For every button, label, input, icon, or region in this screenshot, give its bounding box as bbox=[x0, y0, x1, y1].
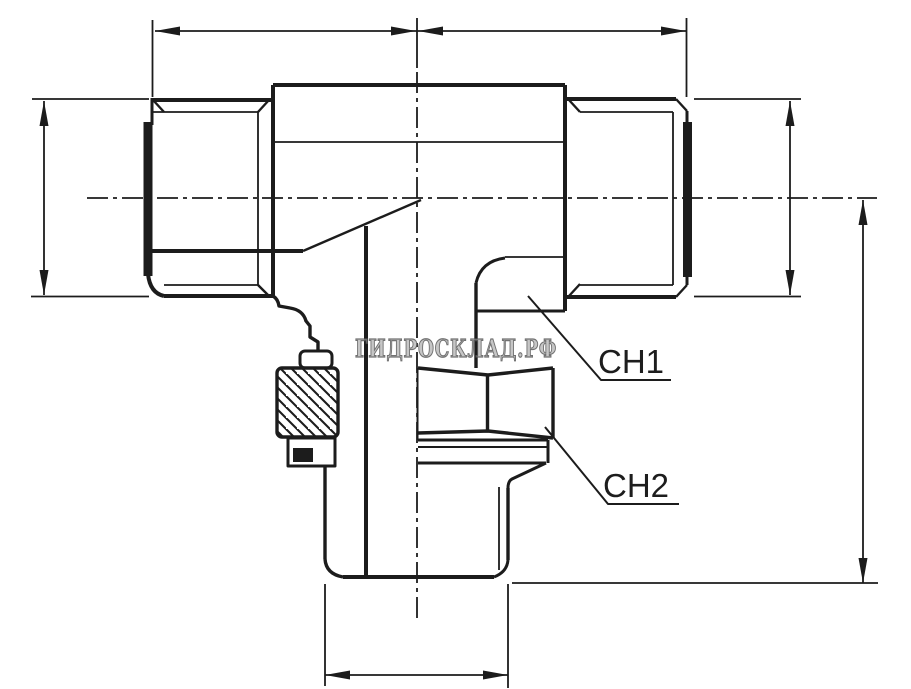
shoulder-cone bbox=[508, 463, 546, 488]
tee-fitting-section-drawing: CH1 CH2 ГИДРОСКЛАД.РФ bbox=[0, 0, 911, 689]
bottom-port-external bbox=[494, 487, 508, 577]
retaining-ring-section bbox=[300, 351, 332, 368]
callouts: CH1 CH2 bbox=[528, 296, 679, 504]
arrow-right-up bbox=[786, 101, 795, 126]
arrow-left-down bbox=[40, 270, 49, 295]
locknut-hatch bbox=[277, 368, 338, 437]
left-port bbox=[148, 98, 273, 296]
arrow-height-up bbox=[859, 200, 868, 225]
tube-bottom-left-arc bbox=[325, 559, 343, 577]
ch1-label: CH1 bbox=[598, 343, 664, 380]
arrow-left-up bbox=[40, 101, 49, 126]
technical-drawing-canvas: CH1 CH2 ГИДРОСКЛАД.РФ bbox=[0, 0, 911, 689]
locknut-section bbox=[277, 368, 338, 437]
neck-fillet-arc bbox=[476, 258, 505, 283]
washer-external bbox=[418, 440, 548, 488]
nut-bottom-edge bbox=[418, 431, 553, 438]
left-port-runout-arc bbox=[148, 274, 164, 296]
arrow-right-down bbox=[786, 270, 795, 295]
arrow-bottom-left bbox=[325, 671, 350, 680]
ch2-label: CH2 bbox=[603, 467, 669, 504]
hex-nut-external bbox=[418, 368, 554, 440]
watermark-text: ГИДРОСКЛАД.РФ bbox=[355, 334, 557, 363]
washer-seal-insert bbox=[293, 448, 313, 462]
arrow-top-left bbox=[155, 27, 180, 36]
arrow-bottom-right bbox=[483, 671, 508, 680]
arrow-height-down bbox=[859, 558, 868, 583]
nut-top-edge bbox=[418, 368, 553, 375]
arrow-top-mid-left bbox=[418, 27, 443, 36]
arrow-top-right bbox=[661, 27, 686, 36]
drill-cone-line bbox=[303, 200, 421, 251]
hex-body bbox=[273, 85, 565, 368]
step-profile bbox=[273, 296, 318, 351]
washer-section bbox=[288, 438, 335, 466]
bottom-port-right-corner bbox=[494, 560, 508, 577]
arrow-top-mid-right bbox=[391, 27, 416, 36]
drawing-root: CH1 CH2 ГИДРОСКЛАД.РФ bbox=[31, 18, 878, 688]
